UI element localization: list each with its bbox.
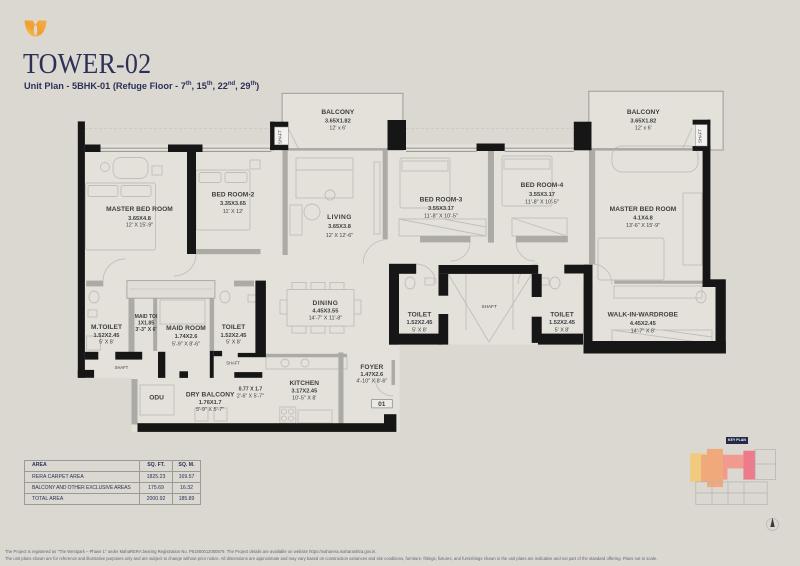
svg-text:TOILET: TOILET bbox=[550, 311, 574, 318]
svg-text:FOYER: FOYER bbox=[360, 364, 383, 371]
svg-text:ODU: ODU bbox=[149, 395, 164, 402]
svg-text:01: 01 bbox=[378, 401, 386, 408]
svg-text:12' x 6': 12' x 6' bbox=[635, 126, 652, 132]
svg-text:1.52X2.45: 1.52X2.45 bbox=[407, 320, 433, 326]
svg-text:TOILET: TOILET bbox=[408, 311, 432, 318]
svg-text:BALCONY: BALCONY bbox=[627, 109, 661, 116]
svg-text:BED ROOM-3: BED ROOM-3 bbox=[420, 197, 463, 204]
svg-text:12' X 12'-6": 12' X 12'-6" bbox=[326, 233, 353, 239]
svg-text:5' X 8': 5' X 8' bbox=[555, 328, 570, 334]
svg-text:BED ROOM-4: BED ROOM-4 bbox=[521, 182, 564, 189]
svg-text:SHAFT: SHAFT bbox=[115, 365, 129, 370]
svg-text:3.65X1.82: 3.65X1.82 bbox=[630, 118, 656, 124]
svg-text:13'-6" X 15'-9": 13'-6" X 15'-9" bbox=[626, 223, 660, 229]
svg-text:14'-7" X 8': 14'-7" X 8' bbox=[631, 329, 655, 335]
svg-text:1X1.85: 1X1.85 bbox=[138, 320, 154, 326]
svg-text:5' X 8': 5' X 8' bbox=[99, 340, 114, 346]
svg-text:DINING: DINING bbox=[313, 300, 339, 307]
svg-text:4'-10" X 8'-6": 4'-10" X 8'-6" bbox=[356, 379, 387, 385]
svg-text:BED ROOM-2: BED ROOM-2 bbox=[212, 192, 255, 199]
svg-text:MASTER BED ROOM: MASTER BED ROOM bbox=[610, 206, 677, 213]
svg-text:3.55X3.17: 3.55X3.17 bbox=[529, 192, 555, 198]
svg-text:3.35X3.65: 3.35X3.65 bbox=[220, 201, 246, 207]
svg-text:SHAFT: SHAFT bbox=[226, 361, 240, 366]
svg-text:SHAFT: SHAFT bbox=[698, 129, 703, 143]
svg-text:5' X 8': 5' X 8' bbox=[412, 328, 427, 334]
svg-text:1.52X2.45: 1.52X2.45 bbox=[221, 333, 247, 339]
svg-text:KITCHEN: KITCHEN bbox=[289, 380, 319, 387]
svg-text:0.77 X 1.7: 0.77 X 1.7 bbox=[239, 386, 263, 392]
svg-text:2'-6" X 5'-7": 2'-6" X 5'-7" bbox=[237, 393, 264, 399]
svg-text:M.TOILET: M.TOILET bbox=[91, 324, 122, 331]
svg-text:3.65X3.8: 3.65X3.8 bbox=[328, 224, 351, 230]
svg-text:1.52X2.45: 1.52X2.45 bbox=[549, 320, 575, 326]
svg-text:14'-7" X 11'-8": 14'-7" X 11'-8" bbox=[309, 316, 343, 322]
svg-text:12' X 15'-9": 12' X 15'-9" bbox=[126, 223, 153, 229]
svg-text:MAID ROOM: MAID ROOM bbox=[166, 325, 206, 332]
svg-text:4.45X3.55: 4.45X3.55 bbox=[312, 309, 338, 315]
svg-text:5'-9" X 8'-6": 5'-9" X 8'-6" bbox=[172, 341, 200, 347]
svg-text:10'-5" X 8': 10'-5" X 8' bbox=[292, 396, 316, 402]
svg-text:11' X 12': 11' X 12' bbox=[223, 209, 243, 215]
svg-text:4.1X4.8: 4.1X4.8 bbox=[633, 216, 653, 222]
svg-text:1.52X2.45: 1.52X2.45 bbox=[94, 333, 120, 339]
svg-text:11'-8" X 10'-5": 11'-8" X 10'-5" bbox=[424, 213, 458, 219]
svg-text:3.17X2.45: 3.17X2.45 bbox=[291, 389, 317, 395]
svg-text:1.76X1.7: 1.76X1.7 bbox=[199, 400, 222, 406]
svg-text:3.55X3.17: 3.55X3.17 bbox=[428, 206, 454, 212]
svg-text:MASTER BED ROOM: MASTER BED ROOM bbox=[106, 206, 173, 213]
svg-text:5' X 8': 5' X 8' bbox=[226, 340, 241, 346]
svg-text:LIVING: LIVING bbox=[327, 214, 352, 221]
svg-text:1.74X2.6: 1.74X2.6 bbox=[175, 334, 198, 340]
svg-text:11'-8" X 10'-5": 11'-8" X 10'-5" bbox=[525, 199, 559, 205]
svg-text:1.47X2.6: 1.47X2.6 bbox=[360, 372, 383, 378]
svg-text:WALK-IN-WARDROBE: WALK-IN-WARDROBE bbox=[608, 312, 679, 319]
svg-text:SHAFT: SHAFT bbox=[278, 130, 283, 144]
svg-text:BALCONY: BALCONY bbox=[321, 109, 355, 116]
svg-text:3'-3" X 6': 3'-3" X 6' bbox=[135, 327, 156, 333]
svg-text:4.45X2.45: 4.45X2.45 bbox=[630, 321, 656, 327]
svg-text:DRY BALCONY: DRY BALCONY bbox=[186, 392, 235, 399]
svg-text:3.65X1.82: 3.65X1.82 bbox=[325, 118, 351, 124]
svg-text:MAID TOI: MAID TOI bbox=[135, 314, 158, 320]
svg-text:TOILET: TOILET bbox=[222, 324, 246, 331]
svg-text:5'-9" X 5'-7": 5'-9" X 5'-7" bbox=[196, 407, 224, 413]
svg-text:SHAFT: SHAFT bbox=[482, 304, 498, 309]
svg-text:12' x 6': 12' x 6' bbox=[329, 126, 346, 132]
svg-text:3.65X4.8: 3.65X4.8 bbox=[128, 216, 151, 222]
